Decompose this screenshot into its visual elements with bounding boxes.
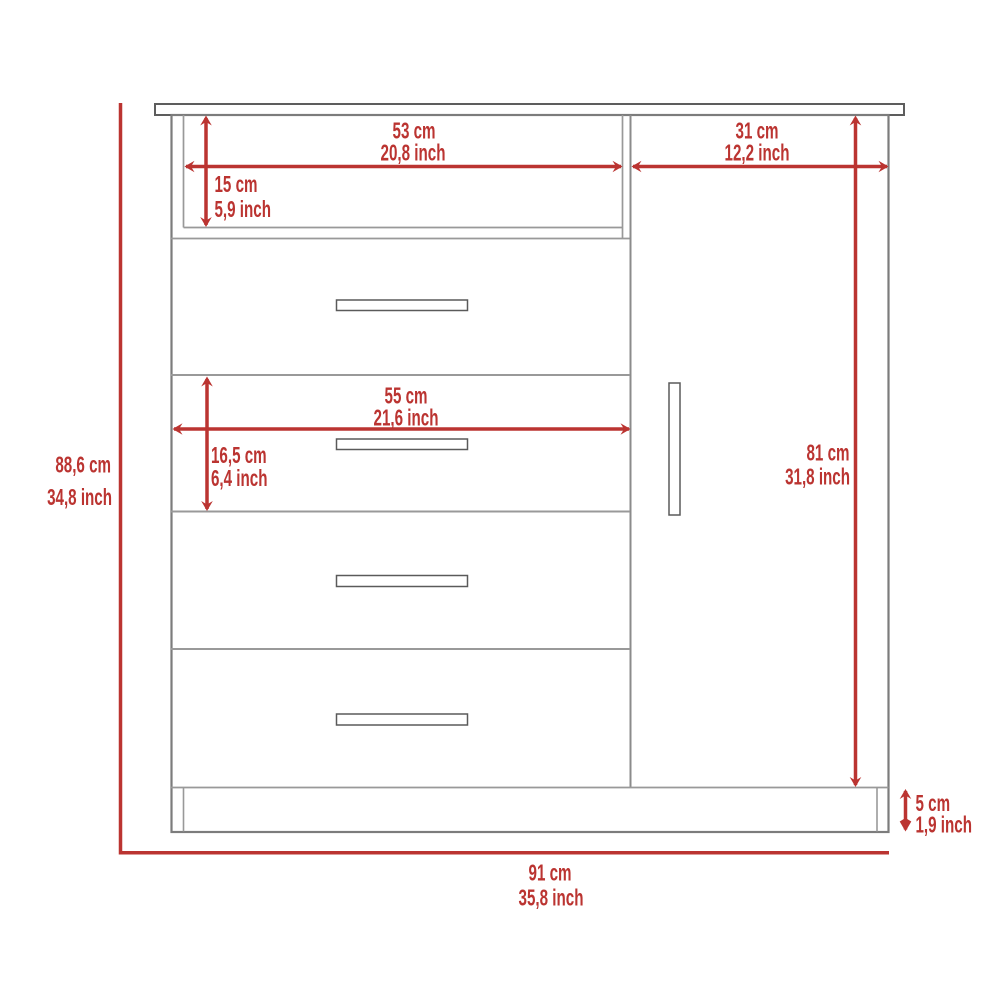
svg-text:1,9 inch: 1,9 inch <box>916 812 972 838</box>
svg-text:88,6 cm: 88,6 cm <box>55 452 111 478</box>
svg-text:6,4 inch: 6,4 inch <box>211 466 267 492</box>
svg-text:91 cm: 91 cm <box>528 860 571 886</box>
svg-text:31,8 inch: 31,8 inch <box>785 464 850 490</box>
svg-text:12,2 inch: 12,2 inch <box>725 140 790 166</box>
svg-text:81 cm: 81 cm <box>806 440 849 466</box>
svg-text:20,8 inch: 20,8 inch <box>381 140 446 166</box>
svg-text:15 cm: 15 cm <box>215 172 258 198</box>
svg-text:34,8 inch: 34,8 inch <box>47 485 112 511</box>
svg-text:21,6 inch: 21,6 inch <box>374 405 439 431</box>
svg-text:5,9 inch: 5,9 inch <box>215 197 271 223</box>
svg-text:35,8 inch: 35,8 inch <box>519 885 584 911</box>
